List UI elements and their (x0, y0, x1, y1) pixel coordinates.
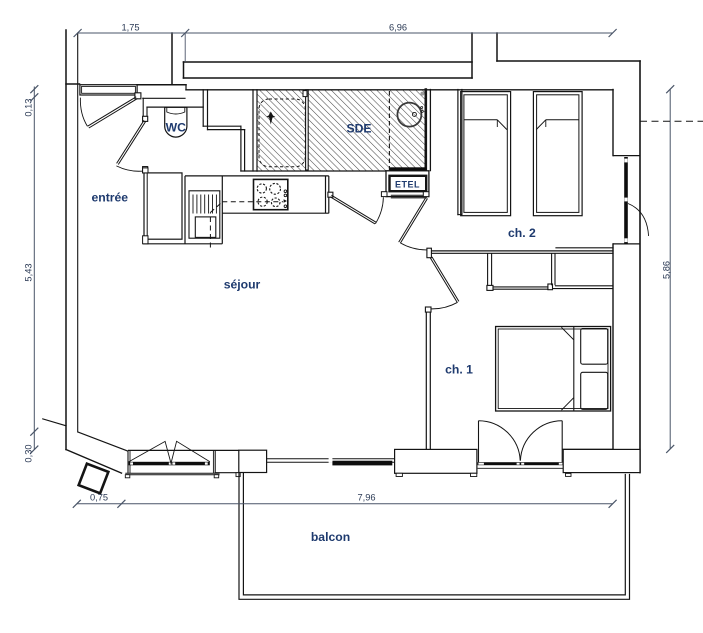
svg-text:séjour: séjour (224, 278, 261, 292)
svg-text:ch. 1: ch. 1 (445, 363, 473, 377)
svg-text:ch. 2: ch. 2 (508, 226, 536, 240)
svg-text:0,75: 0,75 (90, 493, 108, 503)
svg-text:7,96: 7,96 (357, 493, 375, 503)
svg-text:0,13: 0,13 (23, 99, 33, 117)
svg-text:6,96: 6,96 (389, 23, 407, 33)
svg-text:SDE: SDE (346, 122, 371, 136)
svg-text:1,75: 1,75 (121, 23, 139, 33)
svg-text:balcon: balcon (311, 530, 350, 544)
svg-text:WC: WC (166, 120, 187, 134)
svg-text:entrée: entrée (92, 190, 129, 204)
svg-text:0,30: 0,30 (24, 444, 34, 462)
svg-text:ETEL: ETEL (395, 179, 420, 189)
svg-text:5,43: 5,43 (23, 263, 33, 281)
svg-text:5,86: 5,86 (661, 261, 671, 279)
